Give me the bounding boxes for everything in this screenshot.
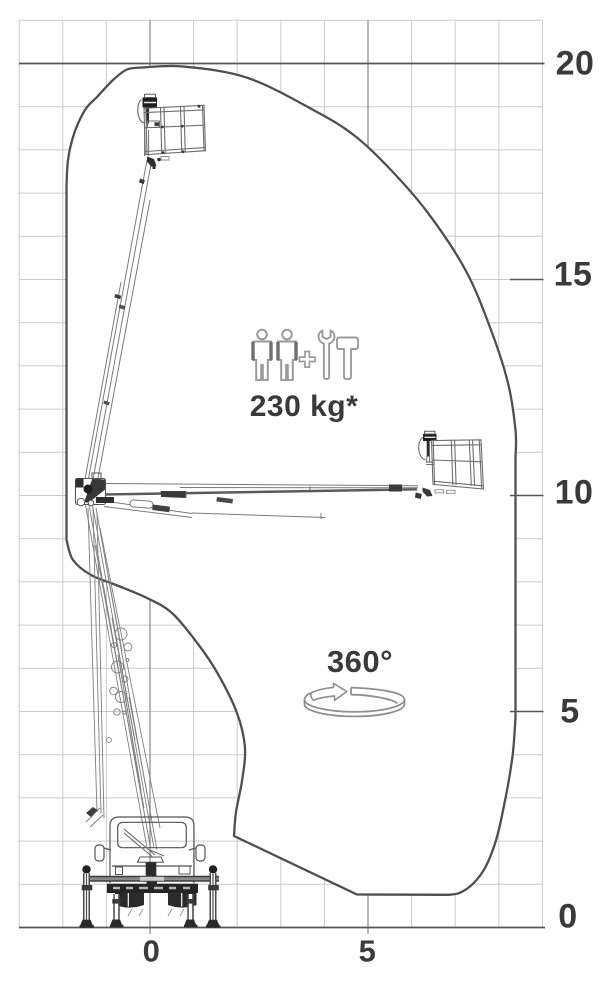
svg-text:10: 10 [555, 474, 594, 512]
svg-text:5: 5 [560, 693, 579, 731]
svg-text:20: 20 [556, 45, 595, 83]
svg-text:360°: 360° [327, 644, 393, 679]
svg-text:15: 15 [554, 256, 593, 294]
svg-text:0: 0 [558, 898, 577, 936]
svg-text:230 kg*: 230 kg* [250, 390, 359, 423]
svg-text:5: 5 [359, 934, 377, 969]
svg-text:0: 0 [143, 934, 161, 969]
